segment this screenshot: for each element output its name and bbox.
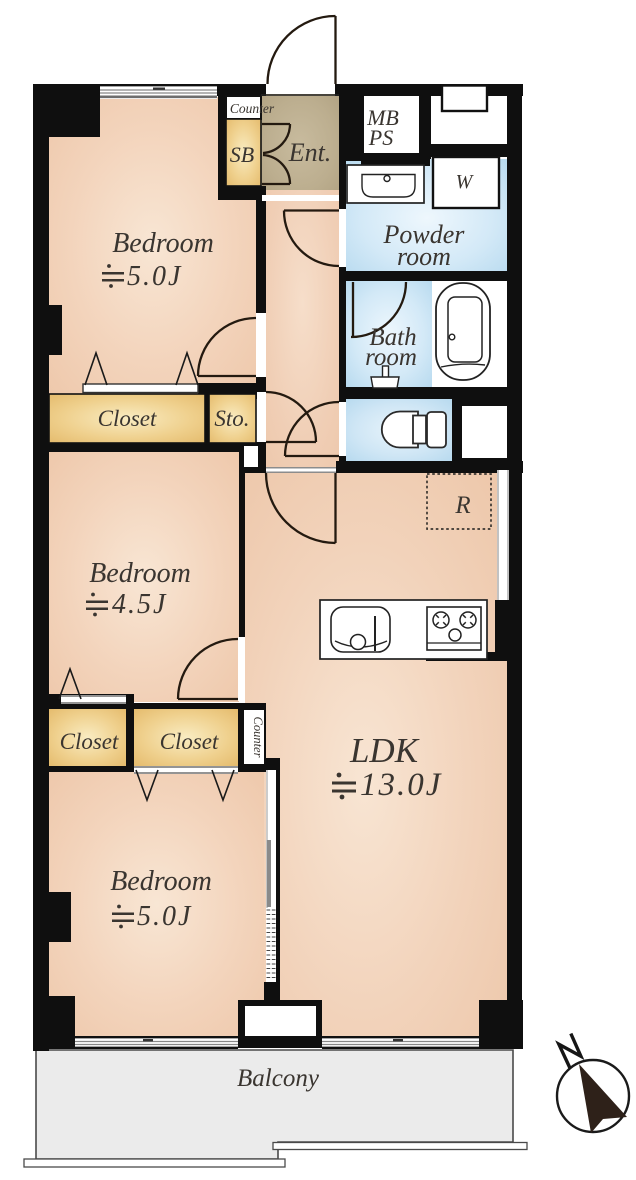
svg-text:room: room: [365, 344, 417, 371]
svg-text:13.0J: 13.0J: [360, 767, 442, 803]
svg-text:R: R: [454, 492, 470, 519]
svg-text:Counter: Counter: [251, 717, 265, 758]
svg-text:Bedroom: Bedroom: [110, 866, 212, 897]
svg-text:Closet: Closet: [160, 729, 219, 754]
svg-text:4.5J: 4.5J: [112, 589, 167, 620]
svg-text:Bedroom: Bedroom: [112, 228, 214, 259]
svg-text:Sto.: Sto.: [214, 406, 249, 431]
svg-text:Bedroom: Bedroom: [89, 558, 191, 589]
svg-text:PS: PS: [368, 125, 393, 150]
svg-text:Closet: Closet: [98, 406, 157, 431]
svg-text:W: W: [456, 171, 475, 193]
svg-text:5.0J: 5.0J: [127, 261, 182, 292]
svg-text:5.0J: 5.0J: [137, 901, 192, 932]
svg-text:Ent.: Ent.: [288, 138, 332, 167]
svg-text:Counter: Counter: [230, 101, 275, 116]
svg-text:Closet: Closet: [60, 729, 119, 754]
svg-text:SB: SB: [230, 142, 254, 167]
svg-text:LDK: LDK: [349, 731, 420, 770]
svg-text:room: room: [397, 242, 451, 271]
svg-text:Balcony: Balcony: [237, 1065, 320, 1092]
